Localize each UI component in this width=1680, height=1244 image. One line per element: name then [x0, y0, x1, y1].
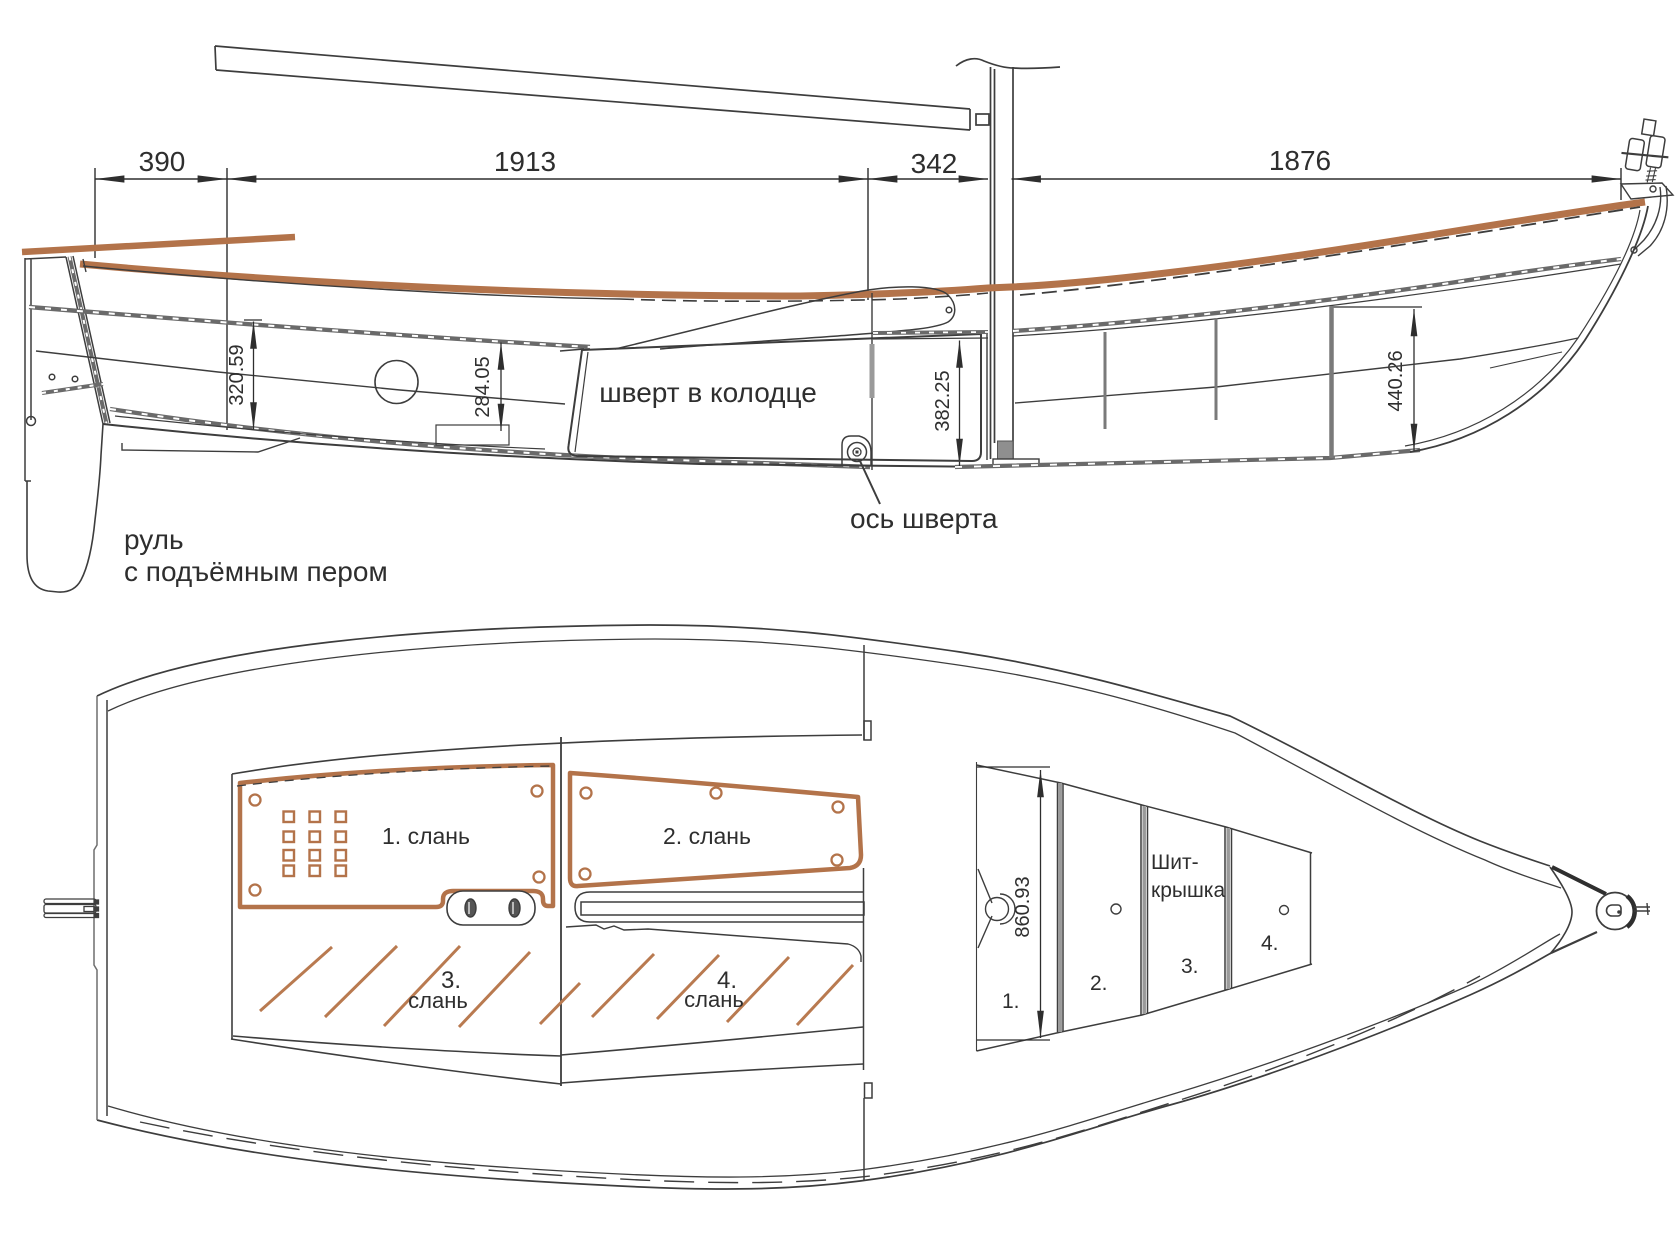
svg-text:слань: слань [408, 988, 468, 1013]
svg-text:382.25: 382.25 [932, 370, 954, 431]
svg-text:342: 342 [911, 148, 958, 179]
svg-text:с подъёмным пером: с подъёмным пером [124, 556, 388, 587]
svg-text:ось шверта: ось шверта [850, 503, 998, 534]
svg-text:440.26: 440.26 [1385, 350, 1407, 411]
svg-text:2.: 2. [1090, 972, 1108, 995]
svg-text:3.: 3. [1181, 955, 1199, 978]
svg-text:2. слань: 2. слань [663, 823, 751, 849]
svg-text:руль: руль [124, 524, 184, 555]
svg-text:1913: 1913 [494, 146, 556, 177]
svg-text:1.: 1. [1002, 990, 1020, 1013]
svg-text:шверт в колодце: шверт в колодце [599, 377, 817, 408]
svg-text:860.93: 860.93 [1012, 876, 1034, 937]
svg-text:320.59: 320.59 [226, 344, 248, 405]
svg-text:4.: 4. [1261, 932, 1279, 955]
svg-text:1. слань: 1. слань [382, 823, 470, 849]
svg-text:284.05: 284.05 [472, 356, 494, 417]
svg-text:390: 390 [139, 146, 186, 177]
svg-text:1876: 1876 [1269, 145, 1331, 176]
svg-text:слань: слань [684, 987, 744, 1012]
svg-text:крышка: крышка [1151, 879, 1225, 902]
svg-text:Шит-: Шит- [1151, 851, 1199, 874]
